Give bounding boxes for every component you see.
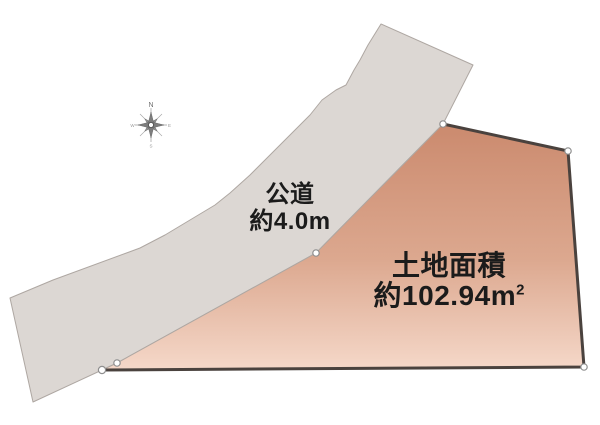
square-meter-sup: 2 bbox=[516, 282, 524, 299]
land-area-label: 土地面積 約102.94m2 bbox=[319, 251, 579, 311]
vertex-dot bbox=[114, 360, 120, 366]
compass-icon: N E W S bbox=[130, 102, 171, 149]
vertex-dot bbox=[581, 364, 587, 370]
vertex-dot bbox=[98, 366, 105, 373]
compass-west-label: W bbox=[130, 123, 135, 128]
compass-east-label: E bbox=[168, 123, 171, 128]
vertex-dot bbox=[440, 121, 446, 127]
compass-north-label: N bbox=[148, 102, 153, 109]
compass-south-label: S bbox=[149, 144, 152, 149]
land-area-value: 約102.94m2 bbox=[319, 281, 579, 311]
land-area-title: 土地面積 bbox=[319, 251, 579, 281]
vertex-dot bbox=[565, 148, 571, 154]
road-name: 公道 bbox=[220, 181, 360, 208]
compass-hub bbox=[148, 122, 153, 127]
road-label: 公道 約4.0m bbox=[220, 181, 360, 235]
road-width: 約4.0m bbox=[220, 208, 360, 235]
